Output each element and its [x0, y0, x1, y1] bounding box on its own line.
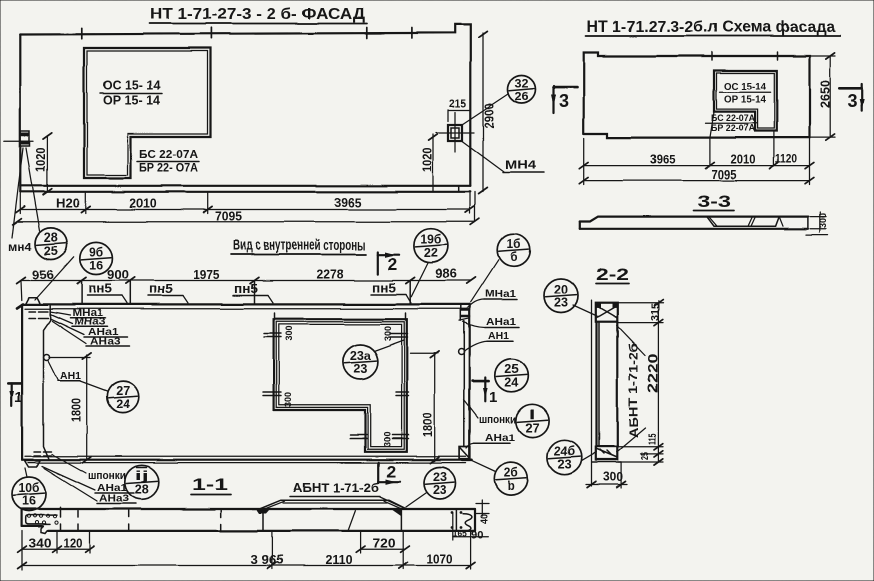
svg-text:1070: 1070	[427, 552, 453, 567]
svg-text:ОР 15-14: ОР 15-14	[724, 94, 766, 106]
svg-text:720: 720	[373, 536, 396, 551]
svg-text:27: 27	[525, 421, 539, 435]
svg-text:90: 90	[471, 530, 484, 542]
svg-text:1800: 1800	[70, 398, 84, 422]
svg-text:2010: 2010	[129, 196, 156, 211]
svg-text:3: 3	[559, 91, 569, 111]
svg-text:ОР 15- 14: ОР 15- 14	[103, 93, 161, 108]
svg-text:АБНТ 1-71-2б: АБНТ 1-71-2б	[293, 480, 379, 495]
svg-text:мн4: мн4	[8, 242, 33, 254]
svg-text:1: 1	[489, 389, 497, 406]
svg-text:3-3: 3-3	[698, 192, 731, 211]
svg-text:3965: 3965	[651, 153, 676, 167]
svg-text:986: 986	[435, 266, 457, 281]
svg-text:b: b	[508, 479, 515, 493]
svg-text:Ⅰ: Ⅰ	[529, 408, 536, 422]
svg-text:3965: 3965	[335, 195, 362, 210]
svg-text:1020: 1020	[421, 147, 435, 172]
svg-text:24: 24	[116, 397, 130, 411]
svg-text:2278: 2278	[317, 267, 344, 282]
svg-text:1120: 1120	[775, 152, 797, 166]
svg-text:10б: 10б	[19, 481, 40, 495]
svg-text:НТ 1-71-27-3 - 2 б- ФАСАД: НТ 1-71-27-3 - 2 б- ФАСАД	[150, 6, 366, 23]
svg-text:300: 300	[283, 392, 294, 407]
svg-text:900: 900	[107, 267, 129, 282]
svg-text:АНа1: АНа1	[485, 432, 515, 444]
svg-text:25: 25	[504, 362, 518, 376]
svg-text:28: 28	[44, 231, 58, 245]
svg-text:340: 340	[29, 536, 52, 551]
svg-text:23: 23	[554, 296, 568, 310]
svg-text:БС 22-07А: БС 22-07А	[139, 147, 198, 161]
svg-text:Н20: Н20	[56, 196, 80, 211]
svg-text:БР 22- О7А: БР 22- О7А	[139, 161, 198, 175]
svg-text:2650: 2650	[819, 80, 833, 108]
svg-text:1б: 1б	[507, 237, 521, 251]
svg-text:22: 22	[424, 246, 438, 260]
svg-text:115: 115	[647, 434, 659, 446]
svg-text:23: 23	[433, 483, 447, 497]
svg-text:2б: 2б	[504, 465, 518, 479]
svg-text:23: 23	[353, 362, 367, 376]
svg-text:40: 40	[480, 514, 491, 524]
svg-text:б: б	[510, 250, 517, 264]
svg-text:2010: 2010	[731, 153, 756, 167]
svg-text:2110: 2110	[326, 552, 353, 567]
svg-text:3 965: 3 965	[251, 552, 284, 567]
svg-text:3: 3	[848, 91, 858, 111]
svg-text:23: 23	[558, 457, 572, 471]
svg-text:24: 24	[504, 376, 518, 390]
svg-text:АБНТ 1-71-2б: АБНТ 1-71-2б	[627, 343, 641, 438]
svg-text:28: 28	[135, 483, 149, 497]
svg-text:ОС 15-14: ОС 15-14	[724, 81, 766, 93]
svg-text:300: 300	[818, 213, 829, 228]
svg-text:24б: 24б	[554, 444, 575, 458]
svg-text:ОС 15- 14: ОС 15- 14	[103, 78, 161, 93]
svg-text:25: 25	[44, 244, 58, 258]
svg-text:шпонки: шпонки	[479, 414, 516, 426]
svg-text:32: 32	[515, 76, 529, 90]
svg-text:шпонки: шпонки	[88, 470, 126, 482]
svg-text:300: 300	[382, 432, 393, 447]
svg-text:26: 26	[515, 90, 529, 104]
svg-text:пн5: пн5	[88, 282, 112, 296]
svg-text:300: 300	[383, 326, 394, 341]
svg-text:1: 1	[15, 389, 23, 406]
svg-text:23: 23	[433, 470, 447, 484]
svg-text:16: 16	[89, 258, 103, 272]
svg-text:АНа1: АНа1	[486, 316, 516, 328]
svg-text:23а: 23а	[350, 349, 372, 363]
svg-text:120: 120	[64, 537, 83, 551]
svg-text:пн5: пн5	[372, 281, 396, 295]
svg-text:АНа3: АНа3	[99, 493, 129, 505]
svg-text:1975: 1975	[193, 267, 219, 282]
svg-text:АН1: АН1	[488, 330, 509, 342]
svg-text:9б: 9б	[89, 245, 103, 259]
svg-text:1800: 1800	[421, 413, 435, 437]
svg-text:пн5: пн5	[149, 282, 173, 296]
svg-text:БР 22-07А: БР 22-07А	[711, 123, 755, 134]
svg-text:Вид с внутренней стороны: Вид с внутренней стороны	[233, 238, 365, 254]
svg-text:300: 300	[284, 326, 295, 341]
svg-text:1-1: 1-1	[192, 475, 228, 494]
svg-text:300: 300	[603, 469, 623, 484]
svg-text:215: 215	[449, 98, 466, 110]
svg-text:НТ 1-71.27.3-2б.л Схема фасада: НТ 1-71.27.3-2б.л Схема фасада	[587, 19, 835, 36]
svg-text:2: 2	[386, 462, 395, 481]
svg-text:7095: 7095	[711, 168, 736, 182]
svg-text:1020: 1020	[34, 147, 48, 172]
svg-text:20: 20	[554, 282, 568, 296]
svg-text:7095: 7095	[215, 209, 242, 224]
svg-text:МН4: МН4	[505, 158, 536, 172]
svg-text:27: 27	[116, 383, 130, 397]
svg-text:МНа1: МНа1	[485, 288, 516, 300]
svg-text:25: 25	[640, 452, 651, 460]
svg-text:2-2: 2-2	[596, 265, 629, 284]
svg-text:2: 2	[388, 254, 398, 274]
svg-text:19б: 19б	[420, 233, 441, 247]
svg-text:165: 165	[453, 529, 467, 539]
svg-text:16: 16	[22, 494, 36, 508]
svg-text:ij: ij	[135, 469, 149, 483]
svg-text:956: 956	[32, 267, 54, 282]
